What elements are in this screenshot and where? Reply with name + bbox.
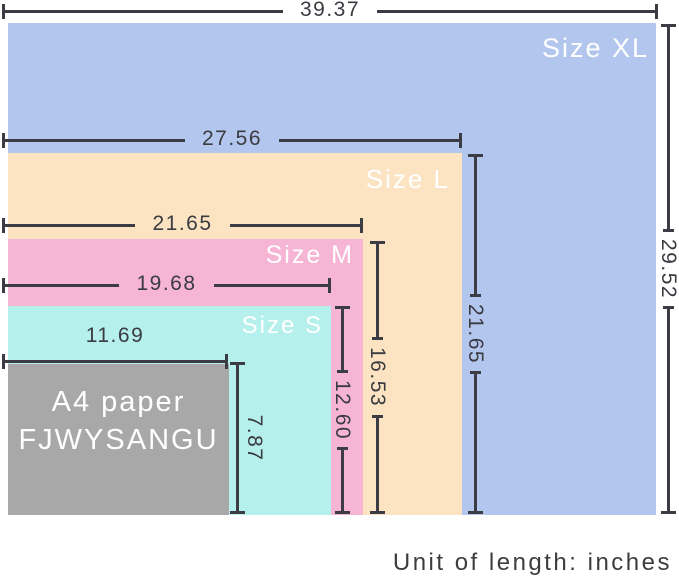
height-dimension-xl: 29.52 xyxy=(658,24,678,514)
height-dimension-s: 12.60 xyxy=(332,306,352,514)
size-s-label: Size S xyxy=(242,312,323,340)
size-m-label: Size M xyxy=(266,241,354,270)
dimension-line xyxy=(341,309,344,370)
height-dimension-a4: 7.87 xyxy=(227,362,247,514)
dimension-line xyxy=(230,224,360,227)
height-value-a4: 7.87 xyxy=(242,415,266,462)
width-value-l: 27.56 xyxy=(185,127,279,151)
dimension-line xyxy=(341,450,344,511)
dimension-line xyxy=(5,284,119,287)
dimension-tick xyxy=(468,511,483,514)
a4-paper-brand-line2: FJWYSANGU xyxy=(8,421,229,459)
width-value-xl: 39.37 xyxy=(283,0,377,22)
dimension-tick xyxy=(370,511,385,514)
dimension-tick xyxy=(328,278,331,293)
dimension-line xyxy=(377,10,655,13)
width-dimension-s: 19.68 xyxy=(2,274,331,296)
height-dimension-m: 16.53 xyxy=(367,241,387,514)
width-value-m: 21.65 xyxy=(135,212,229,236)
width-value-s: 19.68 xyxy=(119,272,213,296)
height-value-xl: 29.52 xyxy=(656,232,679,306)
dimension-line-row xyxy=(2,352,228,370)
a4-paper-label-line1: A4 paper xyxy=(8,383,229,421)
dimension-line xyxy=(474,157,477,294)
dimension-line xyxy=(376,418,379,511)
size-xl-label: Size XL xyxy=(542,33,649,64)
width-dimension-l: 27.56 xyxy=(2,129,462,151)
width-value-a4: 11.69 xyxy=(2,324,228,351)
dimension-tick xyxy=(335,511,350,514)
width-dimension-xl: 39.37 xyxy=(2,0,658,22)
height-value-l: 21.65 xyxy=(463,297,487,371)
dimension-tick xyxy=(360,218,363,233)
dimension-line xyxy=(5,224,135,227)
size-l-label: Size L xyxy=(366,164,450,195)
unit-of-length-note: Unit of length: inches xyxy=(393,549,672,577)
height-value-s: 12.60 xyxy=(330,373,354,447)
dimension-line xyxy=(5,139,185,142)
a4-paper-label: A4 paper FJWYSANGU xyxy=(8,383,229,459)
dimension-line xyxy=(667,309,670,511)
height-value-m: 16.53 xyxy=(365,340,389,414)
dimension-line xyxy=(279,139,459,142)
dimension-tick xyxy=(661,511,676,514)
dimension-tick xyxy=(230,511,245,514)
dimension-tick xyxy=(655,4,658,19)
dimension-line xyxy=(376,244,379,337)
dimension-line xyxy=(474,374,477,511)
dimension-line xyxy=(5,10,283,13)
dimension-line xyxy=(214,284,328,287)
height-dimension-l: 21.65 xyxy=(465,154,485,514)
dimension-line xyxy=(667,27,670,229)
dimension-tick xyxy=(459,133,462,148)
width-dimension-a4: 11.69 xyxy=(2,325,228,370)
width-dimension-m: 21.65 xyxy=(2,214,363,236)
dimension-line xyxy=(236,365,239,511)
dimension-line xyxy=(5,360,225,363)
size-comparison-diagram: Size XL Size L Size M Size S A4 paper FJ… xyxy=(0,0,679,584)
